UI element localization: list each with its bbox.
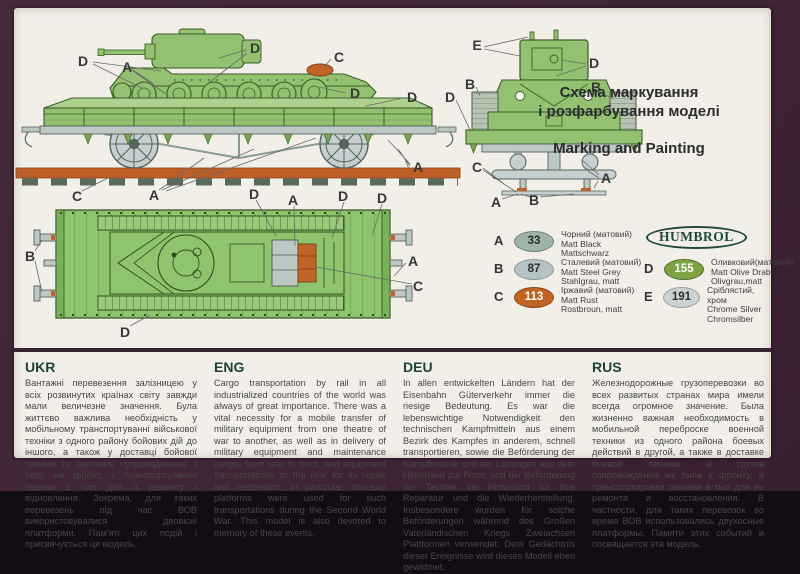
language-sections: UKR Вантажні перевезення залізницею у вс… [25,359,764,574]
section-deu: DEU In allen entwickelten Ländern hat de… [403,359,575,574]
side-view-drawing [16,29,460,182]
section-text-eng: Cargo transportation by rail in all indu… [214,378,386,539]
paint-caption: Оливковий(матовий) Matt Olive Drab Olivg… [711,258,794,287]
paint-caption: Чорний (матовий) Matt Black Mattschwarz [561,230,632,259]
paint-letter: A [494,233,507,248]
paint-row-c: C 113 Іржавий (матовий) Matt Rust Rostbr… [494,286,634,312]
paint-letter: D [644,261,657,276]
paint-swatch-87: 87 [514,259,554,280]
tank-top [98,216,344,310]
title-english: Marking and Painting [484,140,774,157]
paint-swatch-113: 113 [514,287,554,308]
humbrol-logo: HUMBROL [646,226,747,249]
paint-swatch-33: 33 [514,231,554,252]
paint-letter: B [494,261,507,276]
paint-caption: Іржавий (матовий) Matt Rust Rostbroun, m… [561,286,634,315]
section-header-rus: RUS [592,359,764,375]
top-view-drawing [34,210,412,318]
box-side-photo: DADCDDACADADDBDACEDBBDCAAB Схема маркува… [0,0,800,491]
section-divider [14,348,771,352]
paint-row-a: A 33 Чорний (матовий) Matt Black Mattsch… [494,230,632,256]
paint-row-b: B 87 Сталевий (матовий) Matt Steel Grey … [494,258,641,284]
section-header-ukr: UKR [25,359,197,375]
paint-letter: E [644,289,656,304]
paint-caption: Сталевий (матовий) Matt Steel Grey Stahl… [561,258,641,287]
section-header-eng: ENG [214,359,386,375]
paint-swatch-191: 191 [663,287,700,308]
title-block: Схема маркування і розфарбування моделі … [484,84,774,157]
section-header-deu: DEU [403,359,575,375]
instruction-sheet: DADCDDACADADDBDACEDBBDCAAB Схема маркува… [14,8,771,458]
paint-letter: C [494,289,507,304]
section-eng: ENG Cargo transportation by rail in all … [214,359,386,574]
title-ukrainian: Схема маркування і розфарбування моделі [484,84,774,122]
paint-row-d: D 155 Оливковий(матовий) Matt Olive Drab… [644,258,794,284]
section-rus: RUS Железнодорожные грузоперевозки во вс… [592,359,764,574]
section-text-deu: In allen entwickelten Ländern hat der Ei… [403,378,575,574]
paint-caption: Сріблястий, хром Chrome Silver Chromsilb… [707,286,771,325]
paint-swatch-155: 155 [664,259,704,280]
paint-row-e: E 191 Сріблястий, хром Chrome Silver Chr… [644,286,771,312]
section-ukr: UKR Вантажні перевезення залізницею у вс… [25,359,197,574]
tank-side [98,29,376,106]
section-text-rus: Железнодорожные грузоперевозки во всех р… [592,378,764,551]
section-text-ukr: Вантажні перевезення залізницею у всіх р… [25,378,197,551]
